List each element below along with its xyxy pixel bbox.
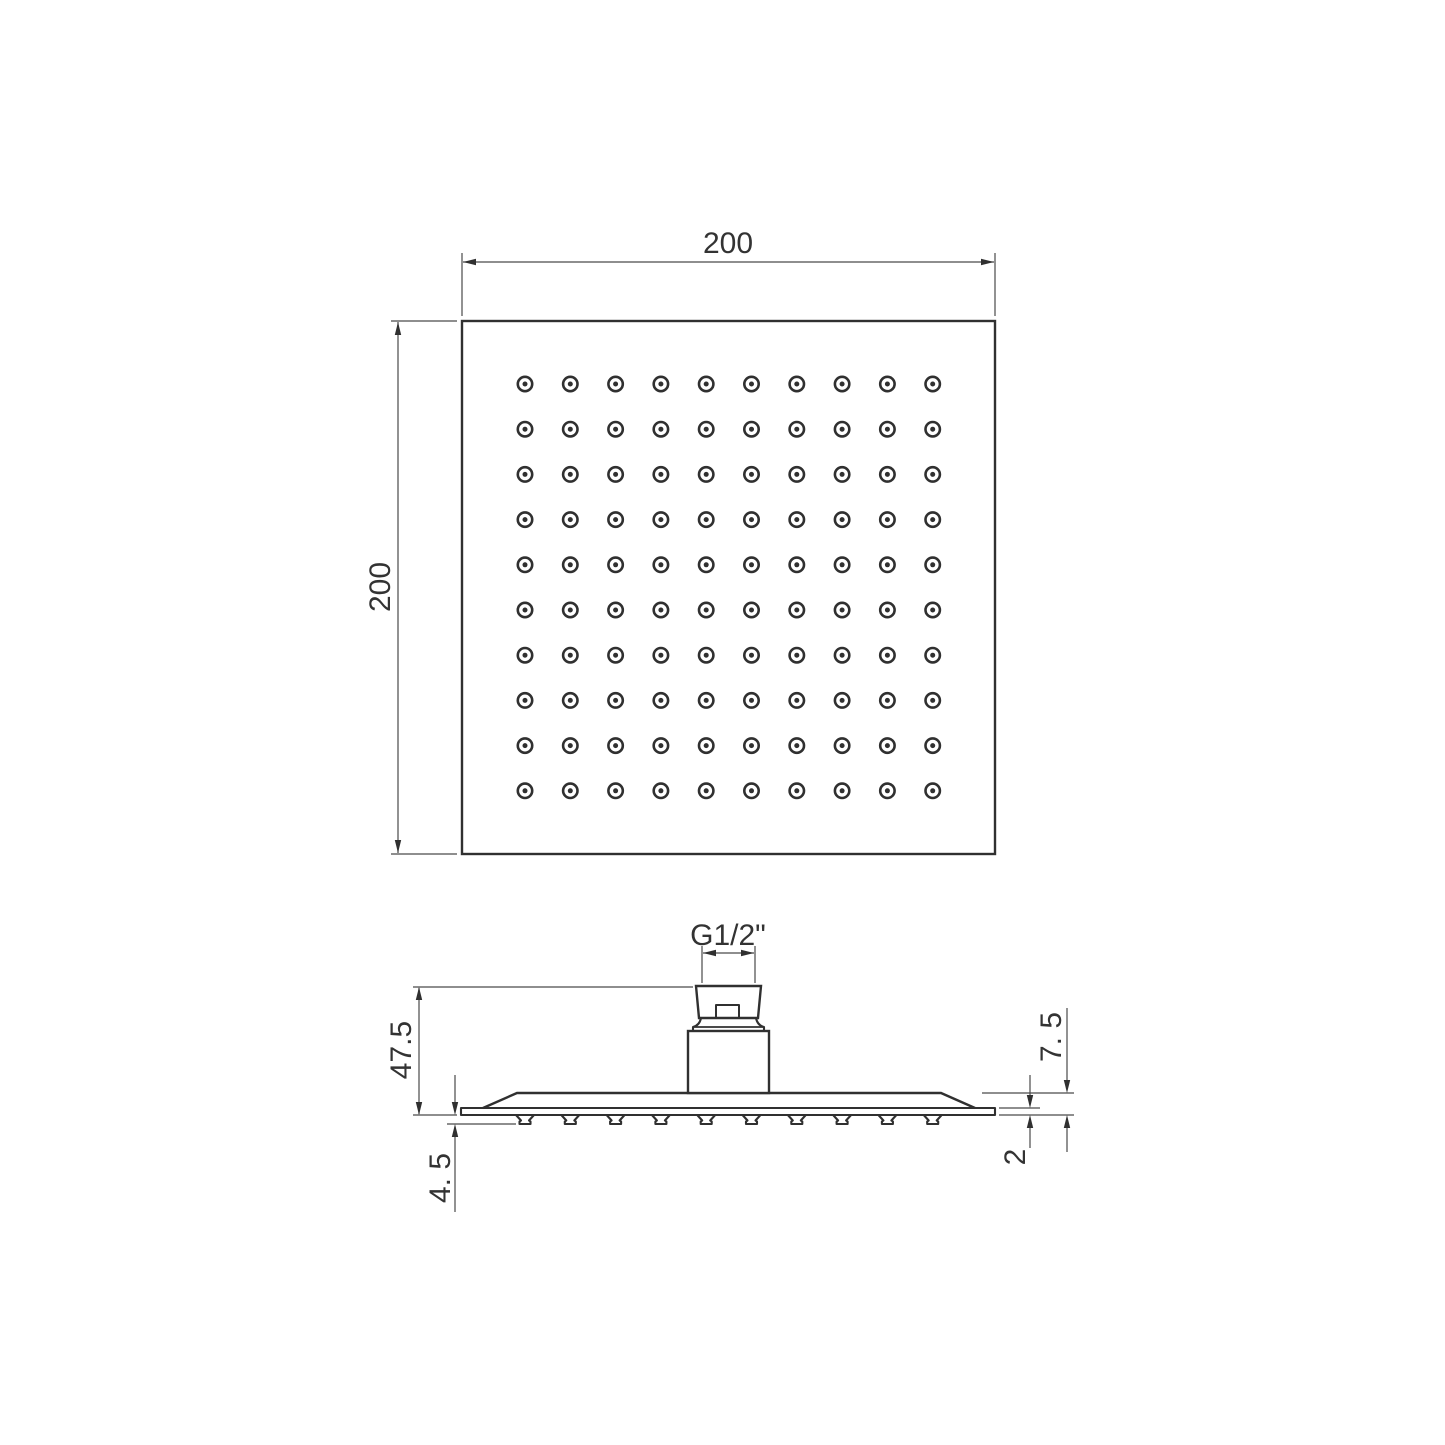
nozzle-dot [704,427,709,432]
nozzle-dot [794,608,799,613]
technical-drawing: 200 200 [0,0,1445,1445]
nozzle-dot [523,608,528,613]
nozzle-dot [613,653,618,658]
total-height-label: 47.5 [385,1021,418,1079]
nozzle-dot [930,562,935,567]
nozzle-dot [658,517,663,522]
nozzle-dot [613,427,618,432]
nozzle-dot [613,472,618,477]
nut-outline [696,986,761,1018]
nozzle-dot [568,427,573,432]
nozzle-dot [523,698,528,703]
nozzle-dot [885,653,890,658]
side-nozzle [561,1115,579,1124]
arrowhead-up [416,987,422,1000]
nozzle-dot [523,653,528,658]
dim-top-width: 200 [462,227,995,316]
nozzle-dot [568,382,573,387]
nozzle-dot [885,788,890,793]
nozzle-dot [749,562,754,567]
arrowhead-down [1027,1095,1033,1108]
nozzle-dot [613,382,618,387]
side-nozzle [743,1115,761,1124]
nozzle-dot [704,653,709,658]
head-plate [461,1108,995,1115]
nozzle-dot [749,608,754,613]
nozzle-dot [568,608,573,613]
nozzle-dot [523,788,528,793]
dim-plate-thickness: 2 [999,1075,1040,1165]
nozzle-dot [704,788,709,793]
nozzle-dot [930,382,935,387]
nozzle-dot [930,788,935,793]
nozzle-dot [568,472,573,477]
nozzle-dot [749,653,754,658]
nozzle-dot [794,517,799,522]
nozzle-dot [840,743,845,748]
arrowhead-up [452,1124,458,1137]
nozzle-dot [658,653,663,658]
nozzle-dot [930,517,935,522]
nozzle-dot [523,427,528,432]
nozzle-dot [794,382,799,387]
nozzle-dot [840,698,845,703]
nozzle-dot [794,472,799,477]
nozzle-dot [840,472,845,477]
connector-nut [696,986,761,1018]
side-nozzle-row [516,1115,942,1124]
nozzle-dot [840,608,845,613]
nozzle-dot [704,517,709,522]
nozzle-dot [658,788,663,793]
arrowhead-up [395,322,401,335]
side-nozzle [924,1115,942,1124]
nozzle-dot [885,382,890,387]
nozzle-dot [613,562,618,567]
width-dimension-label: 200 [703,227,753,260]
edge-height-label: 7. 5 [1035,1012,1068,1062]
nozzle-dot [704,562,709,567]
side-nozzle [697,1115,715,1124]
nozzle-dot [704,608,709,613]
head-cap [483,1093,975,1108]
nozzle-dot [749,472,754,477]
nozzle-dot [840,427,845,432]
nozzle-dot [704,743,709,748]
nozzle-dot [885,517,890,522]
nozzle-dot [749,517,754,522]
arrowhead-up [1027,1115,1033,1128]
nozzle-dot [613,608,618,613]
arrowhead-down [395,840,401,853]
nozzle-dot [930,698,935,703]
connector-body [688,1031,769,1093]
nozzle-dot [704,698,709,703]
dim-thread: G1/2" [690,919,766,983]
nozzle-dot [658,472,663,477]
nozzle-dot [885,562,890,567]
nozzle-dot [930,653,935,658]
height-dimension-label: 200 [364,562,397,612]
nozzle-dot [749,788,754,793]
arrowhead-up [1064,1115,1070,1128]
nozzle-dot [885,472,890,477]
connector-collar [693,1018,764,1031]
side-nozzle [878,1115,896,1124]
nozzle-dot [930,608,935,613]
nozzle-dot [794,788,799,793]
nozzle-dot [568,788,573,793]
nozzle-dot [930,472,935,477]
side-nozzle [788,1115,806,1124]
arrowhead-down [452,1102,458,1115]
collar-shape [693,1018,764,1031]
nozzle-dot [930,743,935,748]
nozzle-dot [523,562,528,567]
nozzle-dot [568,562,573,567]
nozzle-dot [658,698,663,703]
drawing-canvas: 200 200 [0,0,1445,1445]
nozzle-dot [794,743,799,748]
nozzle-dot [613,743,618,748]
arrowhead-left [463,259,476,265]
nozzle-dot [840,562,845,567]
nozzle-dot [613,517,618,522]
dim-edge-height: 7. 5 [982,1008,1074,1152]
nozzle-dot [840,788,845,793]
nozzle-dot [523,472,528,477]
arrowhead-down [416,1102,422,1115]
dim-total-height: 47.5 [385,987,693,1115]
nozzle-dot [523,517,528,522]
nozzle-dot [885,608,890,613]
shower-plate-outline [462,321,995,854]
side-nozzle [652,1115,670,1124]
dim-left-height: 200 [364,321,457,854]
nozzle-dot [704,472,709,477]
nozzle-dot [658,743,663,748]
dim-nozzle-height: 4. 5 [424,1075,516,1212]
nozzle-dot [658,608,663,613]
nozzle-dot [930,427,935,432]
side-nozzle [516,1115,534,1124]
nozzle-height-label: 4. 5 [424,1153,457,1203]
nozzle-dot [885,698,890,703]
side-view: G1/2" 47.5 4. 5 7. 5 [385,919,1074,1212]
nozzle-dot [568,743,573,748]
nozzle-dot [749,698,754,703]
nozzle-dot [568,698,573,703]
nozzle-dot [794,698,799,703]
side-nozzle [833,1115,851,1124]
side-nozzle [607,1115,625,1124]
nozzle-dot [749,427,754,432]
nozzle-dot [840,653,845,658]
arrowhead-right [981,259,994,265]
nozzle-dot [568,517,573,522]
nozzle-dot [658,382,663,387]
nozzle-dot [794,562,799,567]
nozzle-dot [840,382,845,387]
arrowhead-down [1064,1080,1070,1093]
thread-dimension-label: G1/2" [690,919,766,952]
nozzle-dot [568,653,573,658]
nozzle-dot [749,382,754,387]
nozzle-dot [658,427,663,432]
nozzle-dot [794,653,799,658]
nozzle-dot [658,562,663,567]
nozzle-dot [885,427,890,432]
nozzle-dot [523,382,528,387]
nozzle-dot [704,382,709,387]
nozzle-dot [523,743,528,748]
plate-thickness-label: 2 [999,1149,1032,1166]
nozzle-dot [613,698,618,703]
nozzle-dot [794,427,799,432]
nozzle-dot [749,743,754,748]
nozzle-dot [885,743,890,748]
top-view: 200 200 [364,227,995,854]
nozzle-dot [840,517,845,522]
nozzle-dot [613,788,618,793]
